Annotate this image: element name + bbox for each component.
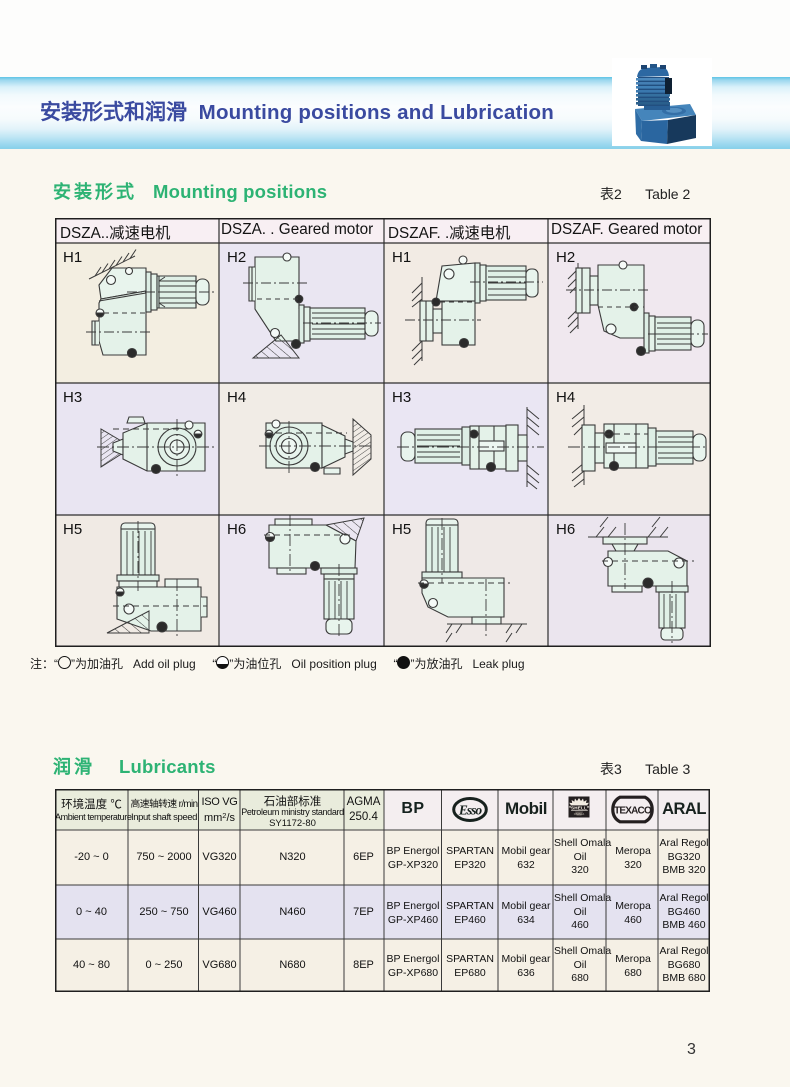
svg-text:TEXACO: TEXACO: [614, 806, 652, 817]
svg-text:OMALA: OMALA: [574, 812, 585, 816]
svg-text:SHELL: SHELL: [571, 805, 587, 810]
svg-text:Esso: Esso: [458, 803, 483, 818]
